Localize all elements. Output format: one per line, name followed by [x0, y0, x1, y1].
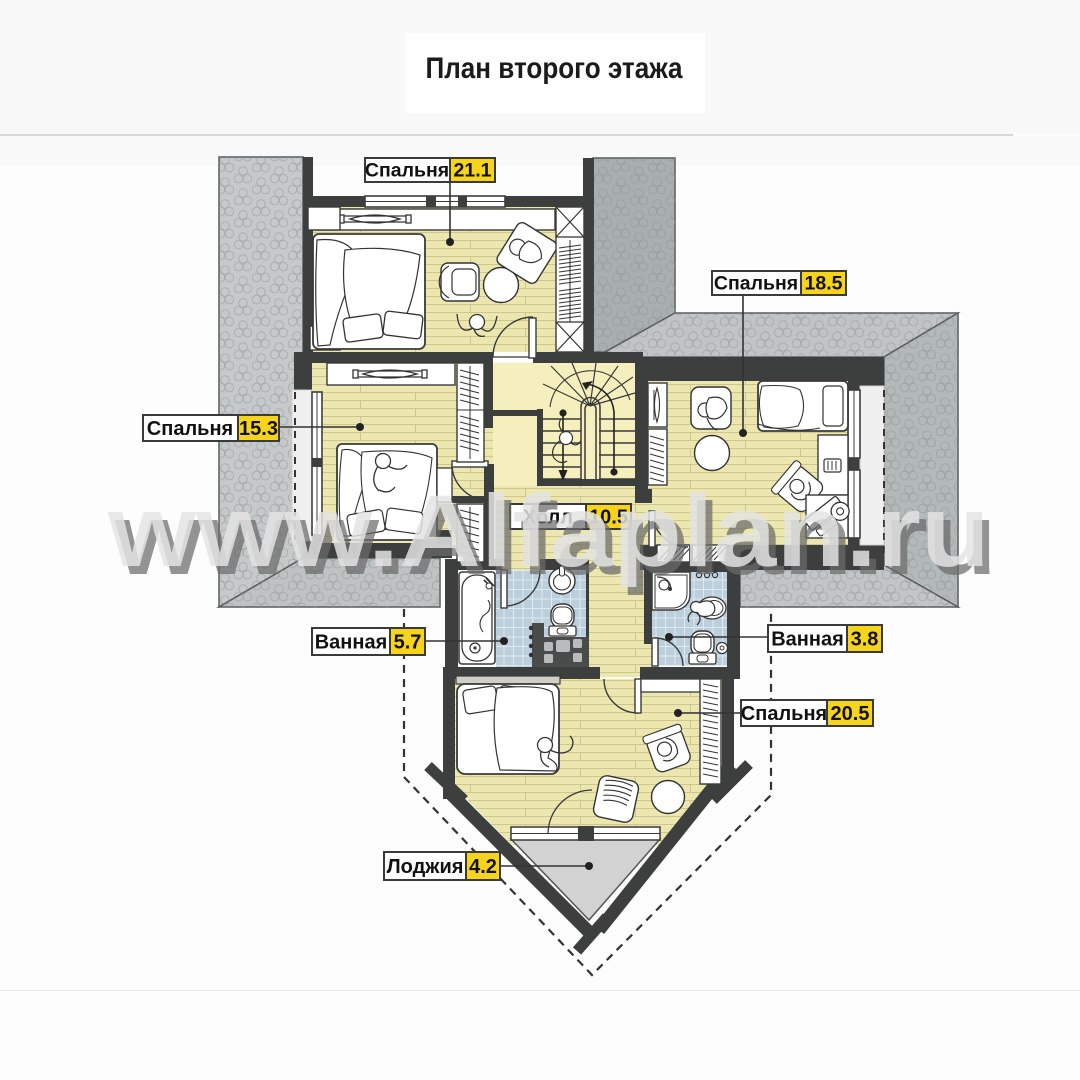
- svg-text:21.1: 21.1: [454, 160, 492, 182]
- svg-text:15.3: 15.3: [239, 418, 278, 440]
- svg-text:Лоджия: Лоджия: [387, 856, 464, 878]
- svg-text:Спальня: Спальня: [714, 273, 798, 295]
- svg-text:4.2: 4.2: [469, 856, 497, 878]
- svg-text:Ванная: Ванная: [315, 632, 388, 654]
- svg-text:Ванная: Ванная: [771, 629, 844, 651]
- svg-text:20.5: 20.5: [831, 703, 870, 725]
- svg-text:Спальня: Спальня: [741, 703, 827, 725]
- svg-text:Спальня: Спальня: [147, 418, 233, 440]
- svg-text:План второго этажа: План второго этажа: [426, 52, 683, 85]
- svg-text:Спальня: Спальня: [365, 160, 449, 182]
- svg-text:3.8: 3.8: [851, 629, 879, 651]
- svg-text:www.Alfaplan.ru: www.Alfaplan.ru: [107, 474, 990, 588]
- svg-text:18.5: 18.5: [805, 273, 843, 295]
- svg-text:5.7: 5.7: [394, 632, 422, 654]
